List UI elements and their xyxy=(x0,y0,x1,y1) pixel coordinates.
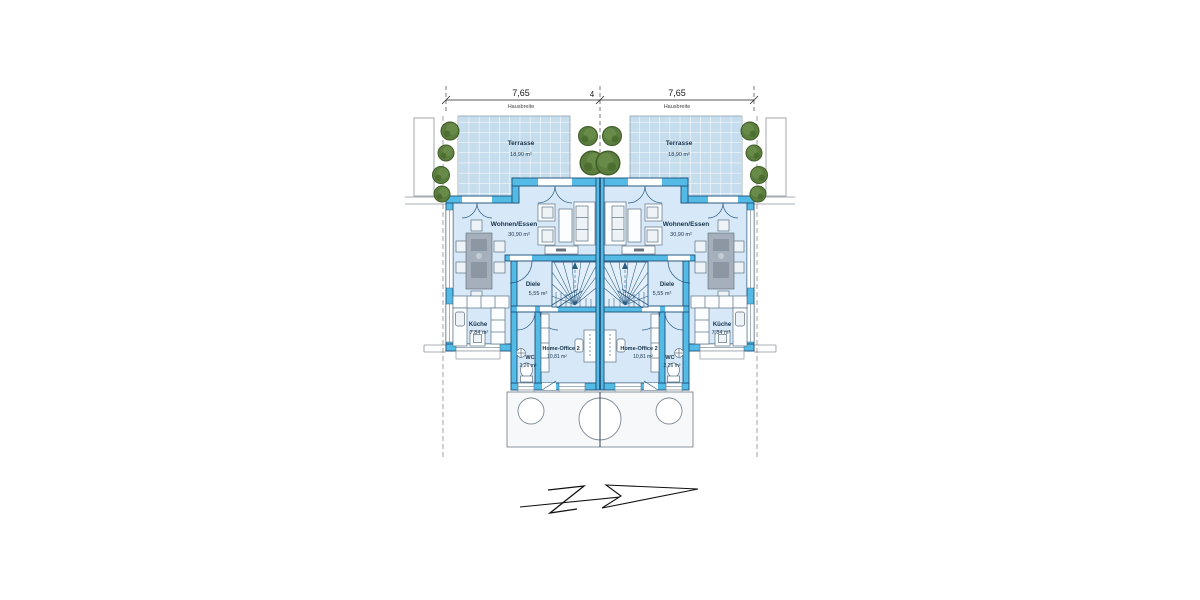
label-kueche: Küche xyxy=(713,322,732,328)
dim-right-width: 7,65 xyxy=(668,88,686,98)
label-diele: Diele xyxy=(660,282,675,288)
label-terrasse-area: 18,90 m² xyxy=(668,152,690,158)
porch-circle-right xyxy=(656,398,682,424)
chair xyxy=(494,262,505,273)
staircase xyxy=(552,262,596,308)
kitchen-counter-right xyxy=(491,308,505,344)
label-terrasse-area: 18,90 m² xyxy=(510,152,532,158)
dim-caption-right: Hausbreite xyxy=(664,104,691,110)
label-wohnen-area: 30,90 m² xyxy=(670,232,692,238)
shrub-icon xyxy=(432,166,449,183)
light-well-kitchen xyxy=(456,351,500,359)
door-living-hall xyxy=(510,256,532,261)
dim-left-width: 7,65 xyxy=(512,88,530,98)
label-wohnen: Wohnen/Essen xyxy=(663,221,710,228)
wall-wc-office xyxy=(535,312,541,383)
party-wall xyxy=(596,178,604,390)
label-office: Home-Office 2 xyxy=(620,346,657,352)
label-terrasse: Terrasse xyxy=(666,140,693,147)
floorplan-svg: 7,65 4 7,65 Hausbreite Hausbreite xyxy=(0,0,1200,600)
label-terrasse: Terrasse xyxy=(508,140,535,147)
wall-hall-west xyxy=(511,261,517,383)
north-arrow-icon xyxy=(520,485,698,513)
label-kueche-area: 7,84 m² xyxy=(470,330,489,336)
label-kueche-area: 7,84 m² xyxy=(712,330,731,336)
dim-separation: 4 xyxy=(590,90,595,99)
label-diele-area: 5,55 m² xyxy=(529,291,548,297)
chair xyxy=(494,241,505,252)
label-wc-area: 2,26 m² xyxy=(664,363,681,369)
entrance-porch xyxy=(507,392,693,447)
label-wohnen: Wohnen/Essen xyxy=(491,221,538,228)
shrub-icon xyxy=(438,145,454,161)
label-wohnen-area: 30,90 m² xyxy=(508,232,530,238)
chair xyxy=(456,262,467,273)
coffee-table xyxy=(559,209,572,242)
label-diele: Diele xyxy=(526,282,541,288)
label-office-area: 10,81 m² xyxy=(633,354,653,360)
porch-circle-left xyxy=(518,398,544,424)
shrub-icon xyxy=(441,122,459,140)
label-wc: WC xyxy=(525,355,534,361)
door-wc xyxy=(517,307,535,312)
terrace-door-bay xyxy=(538,179,572,186)
label-office: Home-Office 2 xyxy=(542,346,579,352)
terrace-door-main xyxy=(462,197,492,203)
shrub-icon xyxy=(579,127,598,146)
label-office-area: 10,81 m² xyxy=(547,354,567,360)
dim-caption-left: Hausbreite xyxy=(508,104,535,110)
kitchen-sink xyxy=(456,312,465,326)
label-wc: WC xyxy=(665,355,674,361)
label-kueche: Küche xyxy=(469,322,488,328)
toilet-tank xyxy=(521,376,533,382)
label-wc-area: 2,26 m² xyxy=(520,363,537,369)
label-diele-area: 5,55 m² xyxy=(653,291,672,297)
chair xyxy=(471,220,482,231)
shrub-icon xyxy=(434,186,450,202)
chair xyxy=(456,241,467,252)
floorplan-canvas: 7,65 4 7,65 Hausbreite Hausbreite xyxy=(0,0,1200,600)
